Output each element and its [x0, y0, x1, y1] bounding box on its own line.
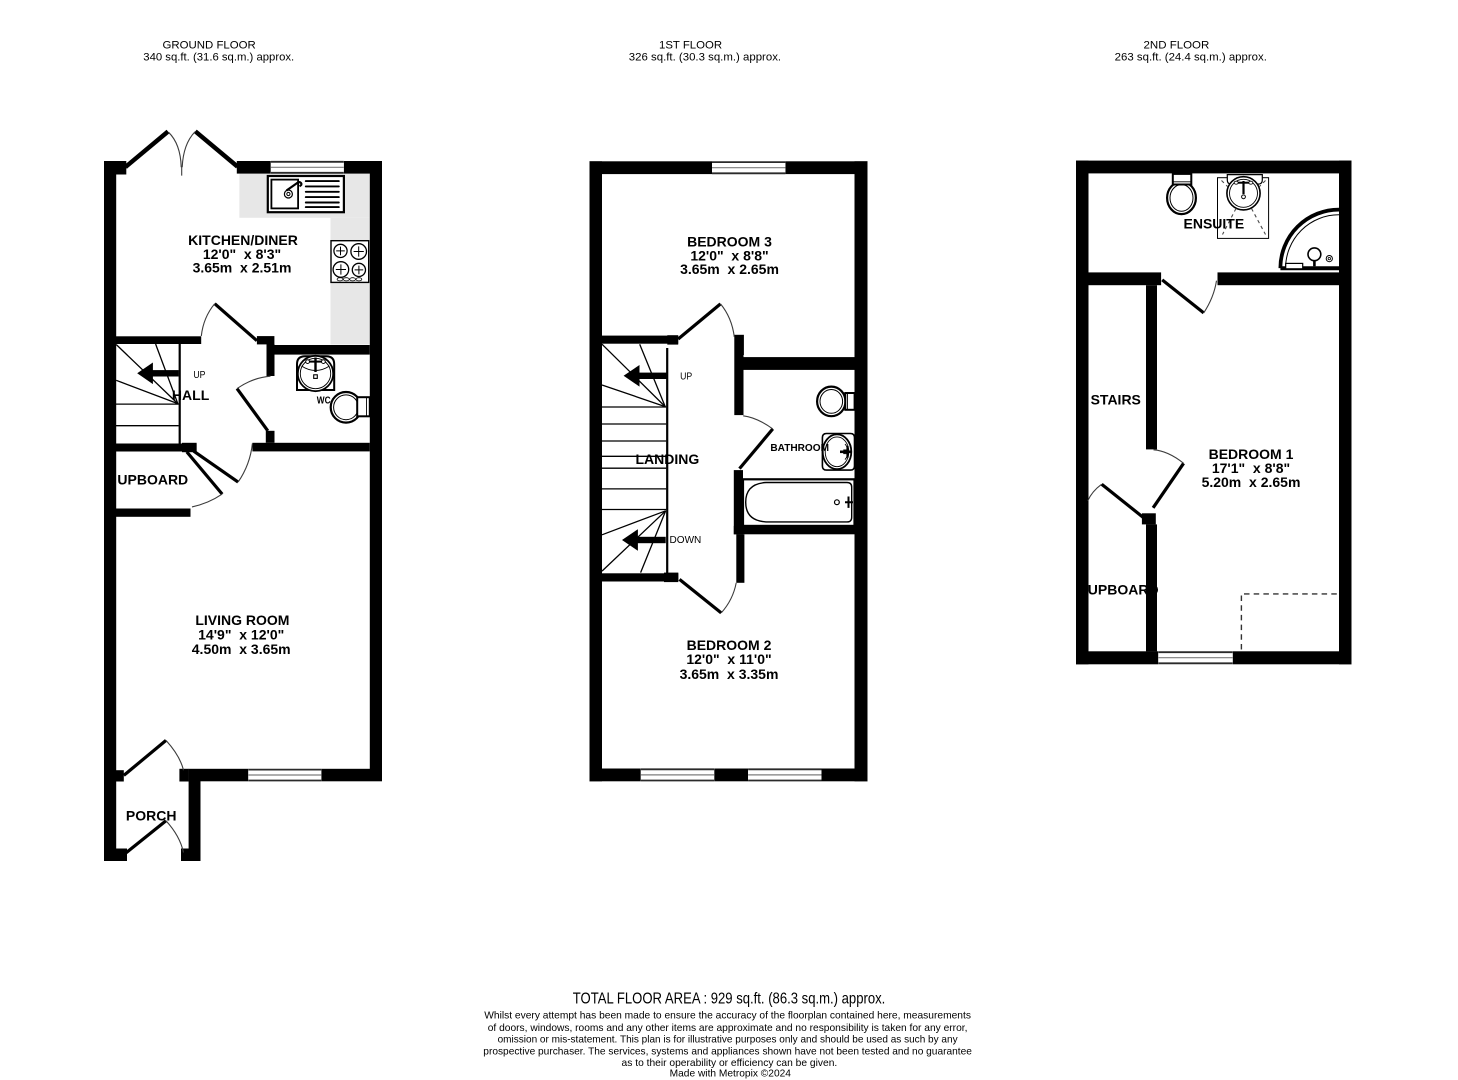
svg-text:TOTAL FLOOR AREA : 929 sq.ft.: TOTAL FLOOR AREA : 929 sq.ft. (86.3 sq.m… [573, 991, 886, 1008]
svg-text:ENSUITE: ENSUITE [1184, 215, 1245, 231]
svg-text:UPBOARD: UPBOARD [1088, 582, 1159, 598]
svg-text:2ND FLOOR: 2ND FLOOR [1144, 40, 1210, 52]
svg-text:263 sq.ft. (24.4 sq.m.) approx: 263 sq.ft. (24.4 sq.m.) approx. [1115, 51, 1267, 63]
svg-text:Whilst every attempt has been: Whilst every attempt has been made to en… [484, 1010, 971, 1022]
svg-text:340 sq.ft. (31.6 sq.m.) approx: 340 sq.ft. (31.6 sq.m.) approx. [143, 51, 294, 63]
svg-text:3.65m x 2.51m: 3.65m x 2.51m [193, 260, 292, 276]
svg-text:3.65m x 3.35m: 3.65m x 3.35m [680, 666, 779, 682]
svg-text:12'0" x 11'0": 12'0" x 11'0" [686, 651, 771, 667]
svg-text:GROUND FLOOR: GROUND FLOOR [163, 40, 256, 52]
svg-text:HALL: HALL [172, 387, 210, 403]
svg-text:3.65m x 2.65m: 3.65m x 2.65m [680, 261, 779, 277]
svg-text:1ST FLOOR: 1ST FLOOR [659, 40, 722, 52]
svg-text:Made with Metropix ©2024: Made with Metropix ©2024 [670, 1068, 791, 1080]
svg-text:UP: UP [680, 371, 692, 383]
svg-text:prospective purchaser. The ser: prospective purchaser. The services, sys… [483, 1045, 972, 1057]
svg-text:PORCH: PORCH [126, 808, 177, 824]
svg-text:of doors, windows, rooms and a: of doors, windows, rooms and any other i… [488, 1022, 968, 1034]
svg-text:UP: UP [193, 369, 205, 381]
svg-text:4.50m x 3.65m: 4.50m x 3.65m [192, 641, 291, 657]
svg-text:BATHROOM: BATHROOM [770, 443, 829, 454]
svg-text:5.20m x 2.65m: 5.20m x 2.65m [1202, 474, 1301, 490]
svg-text:WC: WC [317, 395, 331, 407]
svg-text:omission or mis-statement. Thi: omission or mis-statement. This plan is … [498, 1034, 959, 1046]
svg-text:STAIRS: STAIRS [1091, 392, 1141, 408]
svg-text:326 sq.ft. (30.3 sq.m.) approx: 326 sq.ft. (30.3 sq.m.) approx. [629, 51, 781, 63]
svg-text:LANDING: LANDING [636, 451, 700, 467]
svg-text:UPBOARD: UPBOARD [117, 472, 188, 488]
svg-text:DOWN: DOWN [670, 534, 702, 546]
